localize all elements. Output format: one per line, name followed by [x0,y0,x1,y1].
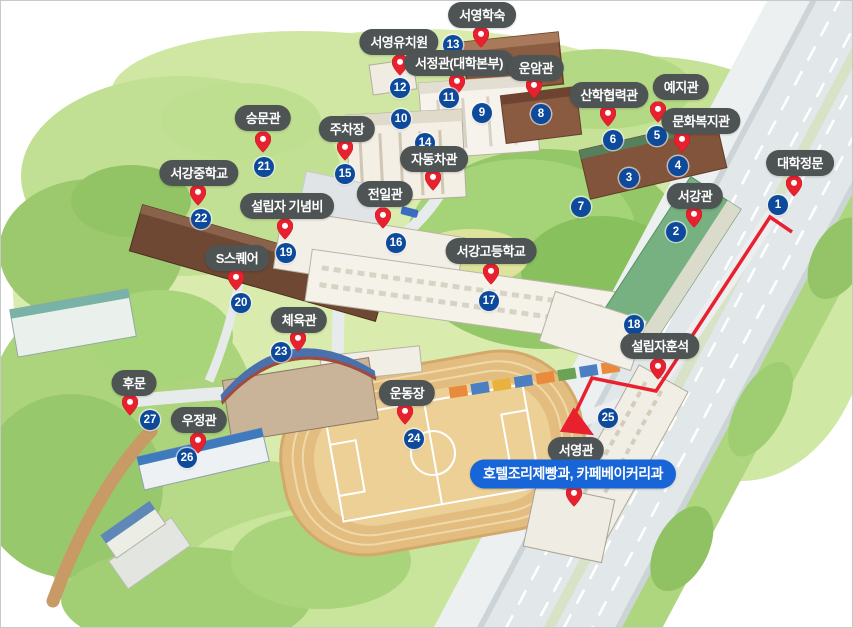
marker-number-parking-lot: 15 [335,164,355,184]
building-label-seojeong-hall-main-admin: 서정관(대학본부) [404,50,514,76]
map-pin-seogang-high-school-icon [483,263,499,284]
map-pin-automobile-hall-icon [425,169,441,190]
marker-number-founder-memorial-monument: 19 [276,243,296,263]
marker-layer: 서영학숙13서영유치원12서정관(대학본부)11운암관8산학협력관6예지관5문화… [1,1,853,628]
building-label-founder-stone: 설립자훈석 [620,333,699,359]
marker-number-building-9: 9 [472,103,492,123]
building-label-automobile-hall: 자동차관 [400,146,468,172]
building-label-seoyeong-dormitory: 서영학숙 [448,2,516,28]
map-pin-seungmun-hall-icon [255,131,271,152]
marker-number-industry-academy-hall: 6 [603,130,623,150]
map-pin-athletic-field-icon [397,403,413,424]
building-label-ujeong-hall: 우정관 [171,407,227,433]
map-pin-jeonil-hall-icon [375,207,391,228]
map-pin-founder-stone-icon [650,358,666,379]
building-label-main-gate: 대학정문 [766,150,834,176]
marker-number-founder-stone: 18 [624,315,644,335]
marker-number-ujeong-hall: 26 [177,448,197,468]
map-pin-s-square-icon [228,269,244,290]
building-label-seungmun-hall: 승문관 [235,105,291,131]
marker-number-seoyeong-hall: 25 [598,408,618,428]
building-label-back-gate: 후문 [112,370,157,396]
building-label-industry-academy-hall: 산학협력관 [569,82,648,108]
marker-number-s-square: 20 [231,293,251,313]
marker-number-athletic-field: 24 [404,429,424,449]
map-pin-gymnasium-icon [290,330,306,351]
marker-number-gymnasium: 23 [271,342,291,362]
building-label-unam-hall: 운암관 [508,55,564,81]
map-pin-seoyeong-dormitory-icon [473,26,489,47]
map-pin-main-gate-icon [786,175,802,196]
marker-number-seogang-high-school: 17 [479,291,499,311]
marker-number-seogang-hall: 2 [666,222,686,242]
marker-number-culture-welfare-hall: 4 [668,156,688,176]
building-label-yeji-hall: 예지관 [653,74,709,100]
marker-number-jeonil-hall: 16 [386,233,406,253]
map-pin-seogang-hall-icon [686,206,702,227]
building-label-culture-welfare-hall: 문화복지관 [661,108,740,134]
map-pin-seogang-middle-school-icon [190,184,206,205]
map-pin-back-gate-icon [122,394,138,415]
map-pin-culture-welfare-hall-icon [674,131,690,152]
building-label-founder-memorial-monument: 설립자 기념비 [240,193,334,219]
marker-number-seogang-middle-school: 22 [191,209,211,229]
department-label-seoyeong-hall: 호텔조리제빵과, 카페베이커리과 [470,460,676,489]
building-label-gymnasium: 체육관 [271,307,327,333]
marker-number-building-3: 3 [619,168,639,188]
building-label-jeonil-hall: 전일관 [357,181,413,207]
map-pin-parking-lot-icon [337,139,353,160]
campus-map: 서영학숙13서영유치원12서정관(대학본부)11운암관8산학협력관6예지관5문화… [0,0,853,628]
marker-number-back-gate: 27 [140,410,160,430]
map-pin-seoyeong-hall-icon [566,485,582,506]
building-label-s-square: S스퀘어 [205,245,270,271]
map-pin-founder-memorial-monument-icon [277,218,293,239]
map-pin-industry-academy-hall-icon [600,105,616,126]
building-label-parking-lot: 주차장 [319,116,375,142]
building-label-seogang-high-school: 서강고등학교 [446,238,537,264]
building-label-seogang-middle-school: 서강중학교 [159,160,238,186]
building-label-athletic-field: 운동장 [379,380,435,406]
building-label-seogang-hall: 서강관 [667,183,723,209]
marker-number-seojeong-hall-main-admin: 11 [439,88,459,108]
marker-number-main-gate: 1 [768,195,788,215]
marker-number-seungmun-hall: 21 [254,157,274,177]
marker-number-unam-hall: 8 [531,104,551,124]
marker-number-campus-hill: 7 [571,197,591,217]
marker-number-seoyeong-kindergarten: 12 [390,78,410,98]
marker-number-building-10: 10 [391,109,411,129]
